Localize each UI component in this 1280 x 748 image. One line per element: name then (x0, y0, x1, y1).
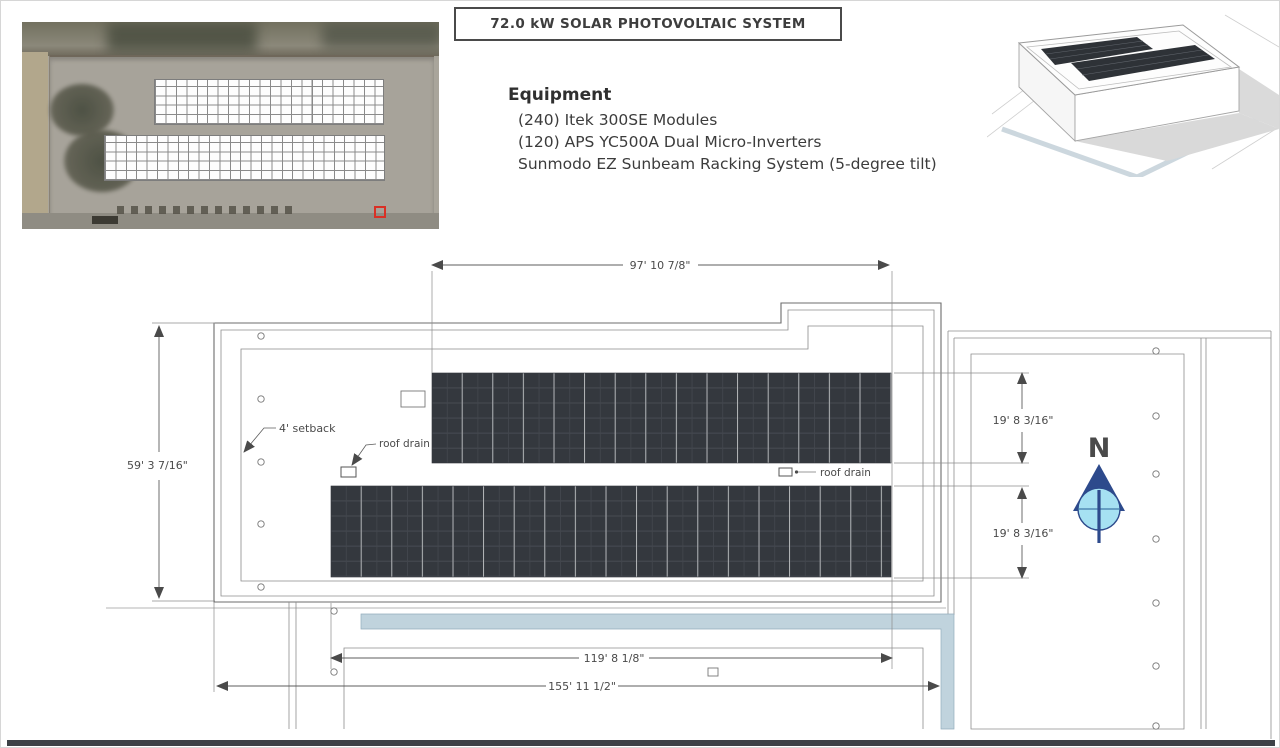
sheet-title: 72.0 kW SOLAR PHOTOVOLTAIC SYSTEM (490, 16, 806, 32)
dim-text: 155' 11 1/2" (548, 680, 616, 693)
south-structures (289, 602, 923, 729)
extension-lines (152, 271, 1029, 692)
render-shadow (1239, 69, 1279, 129)
leader-line (244, 428, 276, 452)
dim-text: 19' 8 3/16" (993, 527, 1054, 540)
render-parapet (1027, 31, 1231, 89)
north-arrow-compass: N (1073, 433, 1125, 543)
aerial-red-marker (374, 206, 386, 218)
roof-drain-label: roof drain (379, 438, 430, 450)
equipment-heading: Equipment (508, 85, 937, 105)
setback-line (241, 326, 923, 581)
east-roof-section (948, 331, 1271, 739)
aerial-car (92, 216, 118, 224)
dim-text: 59' 3 7/16" (127, 459, 188, 472)
roof-hatch (401, 391, 425, 407)
aerial-tree (50, 84, 114, 136)
render-ground-lines (987, 15, 1279, 169)
dim-lower-array-depth: 19' 8 3/16" (993, 488, 1054, 578)
dim-roof-height: 59' 3 7/16" (127, 326, 188, 598)
setback-label-group: 4' setback (244, 422, 336, 452)
setback-label: 4' setback (279, 422, 336, 435)
solar-array-north (432, 373, 891, 463)
render-wall-front (1075, 67, 1239, 141)
roof-drain-left-group: roof drain (341, 438, 430, 477)
dim-upper-array-depth: 19' 8 3/16" (993, 373, 1054, 463)
solar-array-south (331, 486, 891, 577)
leader-dot (795, 470, 798, 473)
aerial-walkway (117, 206, 297, 214)
render-walkway-band (1002, 114, 1267, 177)
dim-top-array-width: 97' 10 7/8" (432, 259, 889, 272)
dim-lower-array-width: 119' 8 1/8" (331, 652, 892, 665)
roof-vents (258, 333, 1159, 729)
title-box: 72.0 kW SOLAR PHOTOVOLTAIC SYSTEM (454, 7, 842, 41)
aerial-west-ground (22, 52, 48, 229)
compass-triangle (1073, 464, 1125, 511)
render-roof (1019, 25, 1239, 95)
aerial-photo (22, 22, 439, 229)
plan-sheet-page: 72.0 kW SOLAR PHOTOVOLTAIC SYSTEM Equipm… (0, 0, 1280, 748)
dim-overall-width: 155' 11 1/2" (217, 680, 939, 693)
north-label: N (1088, 433, 1111, 464)
render-wall-left (1019, 43, 1075, 141)
walkway-band (361, 614, 954, 729)
building-outline (214, 303, 941, 602)
compass-circle (1078, 488, 1120, 530)
dim-text: 19' 8 3/16" (993, 414, 1054, 427)
roof-drain-label: roof drain (820, 467, 871, 479)
roof-drain-symbol (341, 467, 356, 477)
aerial-array-overlay-bottom (104, 135, 385, 181)
equipment-item: (120) APS YC500A Dual Micro-Inverters (508, 131, 937, 153)
roof-drain-symbol (779, 468, 792, 476)
render-solar-arrays (1041, 37, 1215, 81)
sheet-bottom-border (7, 740, 1275, 746)
dim-text: 119' 8 1/8" (584, 652, 645, 665)
aerial-shadow-blob (107, 22, 257, 52)
3d-roof-rendering (987, 9, 1279, 177)
aerial-shadow-blob (322, 22, 439, 48)
equipment-item: Sunmodo EZ Sunbeam Racking System (5-deg… (508, 153, 937, 175)
leader-line (352, 444, 376, 465)
dim-text: 97' 10 7/8" (630, 259, 691, 272)
aerial-array-overlay-top (154, 79, 384, 125)
roof-drain-right-group: roof drain (779, 467, 871, 479)
render-shadow (1075, 113, 1279, 161)
equipment-item: (240) Itek 300SE Modules (508, 109, 937, 131)
equipment-section: Equipment (240) Itek 300SE Modules (120)… (508, 85, 937, 175)
